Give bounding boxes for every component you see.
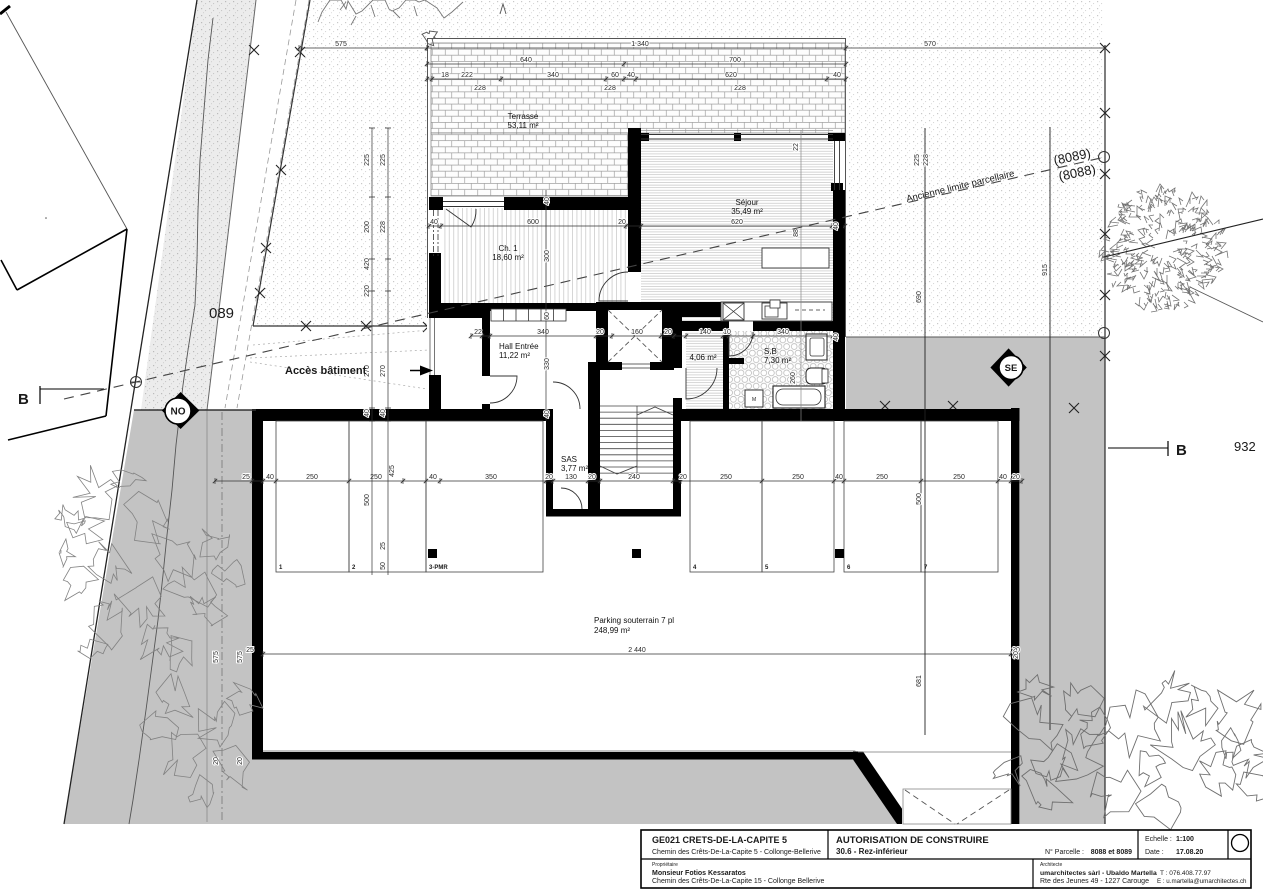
- svg-text:7,30 m²: 7,30 m²: [764, 356, 791, 365]
- svg-text:300: 300: [544, 250, 551, 262]
- svg-text:40: 40: [833, 333, 840, 341]
- svg-text:10: 10: [723, 329, 731, 336]
- svg-text:35,49 m²: 35,49 m²: [731, 207, 763, 216]
- svg-text:Echelle :: Echelle :: [1145, 836, 1172, 843]
- svg-text:Accès bâtiment: Accès bâtiment: [285, 365, 367, 377]
- svg-text:500: 500: [364, 494, 371, 506]
- svg-text:20: 20: [1013, 651, 1020, 659]
- svg-text:GE021 CRETS-DE-LA-CAPITE 5: GE021 CRETS-DE-LA-CAPITE 5: [652, 835, 787, 845]
- svg-text:340: 340: [537, 329, 549, 336]
- svg-text:Chemin des Crêts-De-La-Capite: Chemin des Crêts-De-La-Capite 5 - Collon…: [652, 849, 821, 856]
- svg-text:3,77 m²: 3,77 m²: [561, 464, 588, 473]
- svg-text:250: 250: [876, 474, 888, 481]
- svg-text:40: 40: [430, 219, 438, 226]
- svg-text:SE: SE: [1005, 363, 1018, 374]
- svg-text:20: 20: [679, 474, 687, 481]
- svg-text:40: 40: [835, 474, 843, 481]
- svg-text:40: 40: [544, 410, 551, 418]
- svg-text:18: 18: [441, 72, 449, 79]
- svg-text:260: 260: [790, 372, 797, 384]
- svg-text:20: 20: [588, 474, 596, 481]
- svg-text:20: 20: [237, 757, 244, 765]
- svg-text:200: 200: [364, 221, 371, 233]
- svg-text:575: 575: [213, 651, 220, 663]
- svg-text:228: 228: [604, 85, 616, 92]
- svg-text:M: M: [752, 397, 756, 403]
- svg-text:225: 225: [380, 154, 387, 166]
- svg-text:60: 60: [544, 312, 551, 320]
- svg-text:20: 20: [618, 219, 626, 226]
- svg-text:4,06 m²: 4,06 m²: [689, 353, 716, 362]
- svg-text:Architecte: Architecte: [1040, 862, 1062, 868]
- svg-text:B: B: [18, 391, 29, 408]
- svg-text:20: 20: [545, 474, 553, 481]
- svg-text:Monsieur Fotios Kessaratos: Monsieur Fotios Kessaratos: [652, 870, 746, 877]
- svg-text:40: 40: [627, 72, 635, 79]
- svg-text:umarchitectes sàrl - Ubaldo Ma: umarchitectes sàrl - Ubaldo Martella: [1040, 870, 1157, 877]
- svg-text:20: 20: [1012, 474, 1020, 481]
- svg-text:60: 60: [611, 72, 619, 79]
- svg-text:25: 25: [242, 474, 250, 481]
- svg-text:40: 40: [544, 197, 551, 205]
- svg-text:Hall Entrée: Hall Entrée: [499, 342, 539, 351]
- svg-text:225: 225: [914, 154, 921, 166]
- svg-text:88: 88: [793, 229, 800, 237]
- svg-text:1 340: 1 340: [631, 41, 649, 48]
- svg-text:420: 420: [364, 258, 371, 270]
- svg-text:340: 340: [547, 72, 559, 79]
- svg-text:250: 250: [306, 474, 318, 481]
- svg-text:SAS: SAS: [561, 455, 577, 464]
- svg-text:NO: NO: [171, 407, 186, 418]
- svg-text:089: 089: [209, 305, 234, 322]
- svg-text:250: 250: [953, 474, 965, 481]
- svg-text:228: 228: [380, 221, 387, 233]
- svg-text:130: 130: [565, 474, 577, 481]
- svg-text:S.B: S.B: [764, 347, 777, 356]
- svg-text:248,99 m²: 248,99 m²: [594, 626, 630, 635]
- svg-text:40: 40: [833, 72, 841, 79]
- svg-text:40: 40: [380, 409, 387, 417]
- svg-text:2 440: 2 440: [628, 647, 646, 654]
- svg-text:500: 500: [916, 493, 923, 505]
- svg-text:228: 228: [923, 154, 930, 166]
- svg-text:Ch. 1: Ch. 1: [498, 244, 518, 253]
- svg-text:N° Parcelle :: N° Parcelle :: [1045, 848, 1084, 856]
- svg-text:20: 20: [664, 329, 672, 336]
- svg-text:20: 20: [596, 329, 604, 336]
- svg-text:25: 25: [380, 542, 387, 550]
- svg-text:425: 425: [389, 465, 396, 477]
- svg-text:30.6 - Rez-inférieur: 30.6 - Rez-inférieur: [836, 847, 908, 856]
- svg-text:40: 40: [429, 474, 437, 481]
- svg-text:Rte des Jeunes 49 - 1227 Carou: Rte des Jeunes 49 - 1227 Carouge: [1040, 878, 1149, 885]
- svg-text:3-PMR: 3-PMR: [429, 565, 448, 571]
- svg-text:Séjour: Séjour: [735, 198, 758, 207]
- svg-text:270: 270: [380, 365, 387, 377]
- svg-text:600: 600: [527, 219, 539, 226]
- svg-text:40: 40: [833, 222, 840, 230]
- svg-text:915: 915: [1042, 264, 1049, 276]
- svg-text:1:100: 1:100: [1176, 836, 1194, 843]
- svg-text:160: 160: [631, 329, 643, 336]
- svg-text:240: 240: [628, 474, 640, 481]
- svg-text:225: 225: [364, 154, 371, 166]
- svg-text:53,11 m²: 53,11 m²: [508, 121, 539, 130]
- svg-text:B: B: [1176, 442, 1187, 459]
- svg-text:Date :: Date :: [1145, 849, 1164, 856]
- svg-text:681: 681: [916, 675, 923, 687]
- svg-text:40: 40: [364, 409, 371, 417]
- svg-text:228: 228: [734, 85, 746, 92]
- svg-text:222: 222: [461, 72, 473, 79]
- svg-text:700: 700: [729, 57, 741, 64]
- svg-text:E : u.martella@umarchitectes.c: E : u.martella@umarchitectes.ch: [1157, 878, 1247, 885]
- svg-text:250: 250: [792, 474, 804, 481]
- svg-text:350: 350: [485, 474, 497, 481]
- svg-text:570: 570: [924, 41, 936, 48]
- svg-text:340: 340: [777, 329, 789, 336]
- svg-text:22: 22: [474, 329, 482, 336]
- svg-text:18,60 m²: 18,60 m²: [492, 253, 524, 262]
- svg-text:Parking souterrain 7 pl: Parking souterrain 7 pl: [594, 616, 674, 625]
- svg-text:690: 690: [916, 291, 923, 303]
- svg-text:25: 25: [246, 647, 254, 654]
- svg-text:50: 50: [380, 562, 387, 570]
- svg-text:640: 640: [520, 57, 532, 64]
- svg-text:575: 575: [237, 651, 244, 663]
- svg-text:Chemin des Crêts-De-La-Capite: Chemin des Crêts-De-La-Capite 15 - Collo…: [652, 878, 824, 885]
- svg-text:330: 330: [544, 358, 551, 370]
- svg-text:932: 932: [1234, 439, 1256, 454]
- svg-text:620: 620: [725, 72, 737, 79]
- svg-text:250: 250: [720, 474, 732, 481]
- svg-text:22: 22: [793, 143, 800, 151]
- svg-text:Terrasse: Terrasse: [508, 112, 539, 121]
- svg-text:228: 228: [474, 85, 486, 92]
- svg-text:11,22 m²: 11,22 m²: [499, 351, 530, 360]
- svg-text:40: 40: [999, 474, 1007, 481]
- svg-text:575: 575: [335, 41, 347, 48]
- svg-text:17.08.20: 17.08.20: [1176, 849, 1203, 856]
- svg-text:AUTORISATION DE CONSTRUIRE: AUTORISATION DE CONSTRUIRE: [836, 835, 989, 846]
- svg-text:T : 076.408.77.97: T : 076.408.77.97: [1160, 870, 1211, 877]
- svg-text:140: 140: [699, 329, 711, 336]
- svg-text:Propriétaire: Propriétaire: [652, 862, 678, 868]
- svg-text:8088 et 8089: 8088 et 8089: [1091, 849, 1132, 856]
- svg-text:620: 620: [731, 219, 743, 226]
- svg-text:40: 40: [266, 474, 274, 481]
